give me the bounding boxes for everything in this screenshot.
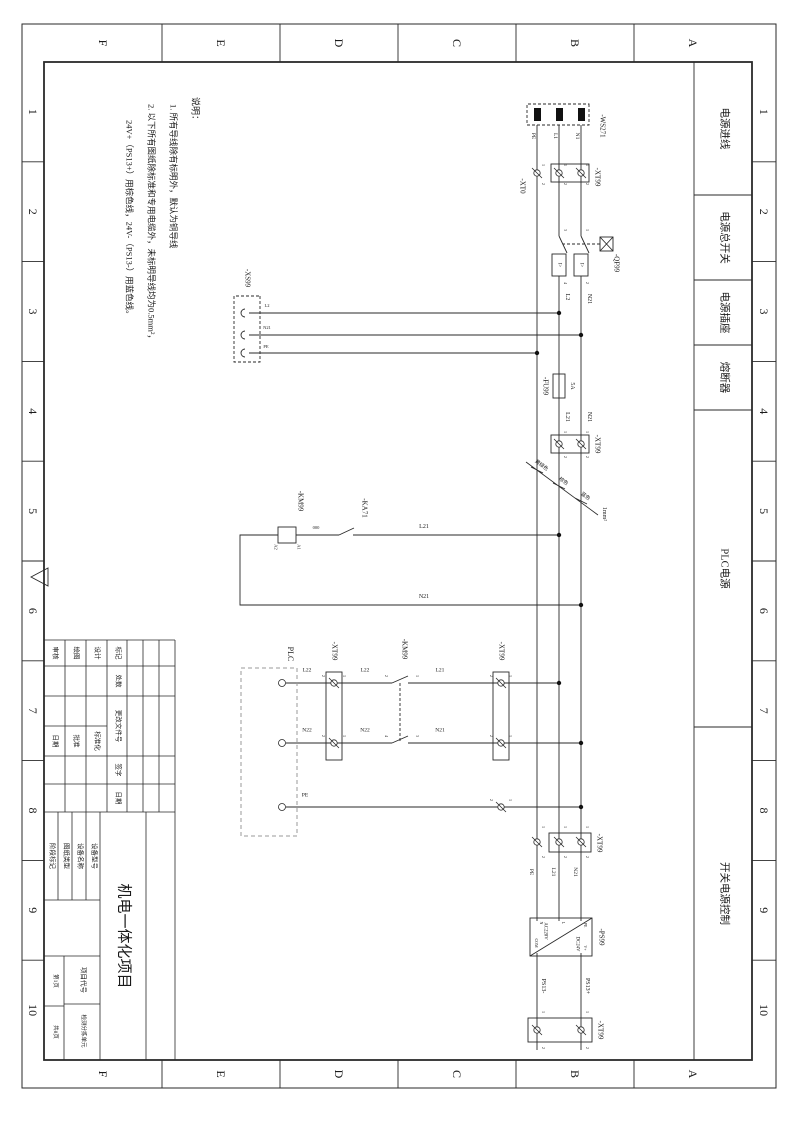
title-block-label: 更改文件号 <box>114 710 121 743</box>
centering-mark <box>31 568 48 586</box>
terminal-number: 1 <box>585 229 589 231</box>
title-block-label: 项目代号 <box>79 967 86 993</box>
note-line: 1. 所有导线除有标明外，默认为铜导线 <box>169 104 178 249</box>
component-label: -FU99 <box>542 377 549 395</box>
component-label: -QF99 <box>613 254 620 272</box>
terminal-number: 2 <box>489 799 493 801</box>
section-label: 电源插座 <box>718 292 729 334</box>
section-label: 开关电源控制 <box>718 862 729 925</box>
grid-number: 9 <box>758 907 770 913</box>
title-block-label: 设备型号 <box>90 843 97 869</box>
grid-letter: E <box>215 39 227 46</box>
terminal-number: 1 <box>415 675 419 677</box>
terminal-number: 4 <box>384 735 388 737</box>
wire-label: L21 <box>549 868 555 877</box>
grid-number: 5 <box>758 508 770 514</box>
grid-number: 8 <box>27 808 39 814</box>
grid-number: 4 <box>27 408 39 414</box>
page-count: 共8页 <box>51 1025 57 1039</box>
grid-letter: E <box>215 1070 227 1077</box>
title-block-label: 阶段标记 <box>48 843 55 869</box>
wire-label: L22 <box>361 668 370 674</box>
sheet-title: 机电一体化项目 <box>116 883 131 988</box>
wire-label: N1 <box>573 133 579 140</box>
wire-label: L21 <box>564 412 570 422</box>
grid-letter: F <box>97 40 109 47</box>
terminal-number: 2 <box>541 1047 545 1049</box>
title-block-label: 设备名称 <box>76 843 83 869</box>
note-line: 2. 以下所有图纸除标准和专用电缆外，未标明导线均为0.5mm²， <box>147 104 156 343</box>
wire-label: N21 <box>586 294 592 304</box>
terminal-number: 2 <box>585 856 589 858</box>
grid-letter: F <box>97 1071 109 1078</box>
terminal-number: 2 <box>585 456 589 458</box>
component-label: -XS99 <box>244 269 251 287</box>
unit-name: 检测分拣单元 <box>79 1014 85 1047</box>
wire-label: PS13- <box>540 979 546 994</box>
socket-xs99 <box>234 296 260 362</box>
terminal-number: 1 <box>342 735 346 737</box>
plc-box <box>241 668 297 836</box>
wires <box>240 125 600 1050</box>
grid-letter: B <box>569 39 581 47</box>
terminal-number: 2 <box>563 856 567 858</box>
title-block-label: 日期 <box>114 792 121 805</box>
grid-number: 6 <box>758 608 770 614</box>
wire-label: L22 <box>303 668 312 674</box>
title-block-label: 审核 <box>51 647 58 660</box>
grid-letter: C <box>451 39 463 47</box>
notes-heading: 说明： <box>191 97 200 124</box>
wire-label: L1 <box>551 133 557 139</box>
grid-number: 10 <box>758 1004 770 1016</box>
pin-label: N <box>539 922 543 925</box>
terminal-number: 2 <box>585 282 589 284</box>
breaker-trip-label: I> <box>579 263 584 268</box>
terminal-number: 1 <box>508 675 512 677</box>
terminal-number: 1 <box>342 675 346 677</box>
grid-number: 3 <box>758 309 770 315</box>
terminal-number: 1 <box>563 431 567 433</box>
title-block-label: 设计 <box>93 647 100 660</box>
drawing-page: -WS271N1L1PE-XT0-XT99-QF99I>I>L2N21-XS99… <box>0 0 794 1123</box>
terminals <box>279 168 587 1035</box>
grid-letter: A <box>687 39 699 48</box>
grid-number: 8 <box>758 808 770 814</box>
terminal-number: 2 <box>489 675 493 677</box>
grid-letter: D <box>333 39 345 48</box>
terminal-number: 1 <box>585 164 589 166</box>
wire-label: PE <box>529 133 535 139</box>
title-block-label: 日期 <box>51 735 58 748</box>
component-label: -XT99 <box>594 435 601 454</box>
title-block-label: 签字 <box>114 764 121 777</box>
terminal-number: 2 <box>489 735 493 737</box>
wire-label: N21 <box>571 867 577 876</box>
component-label: -XT99 <box>331 642 338 661</box>
terminal-number: 2 <box>321 735 325 737</box>
terminal-number: 1 <box>508 735 512 737</box>
grid-number: 10 <box>27 1004 39 1016</box>
title-block-label: 批准 <box>72 735 79 748</box>
component-label: -XT99 <box>594 168 601 187</box>
power-inlet-ws271 <box>527 104 589 125</box>
wire-label: L2 <box>564 294 570 301</box>
terminal-label: A2 <box>273 544 278 550</box>
grid-number: 6 <box>27 608 39 614</box>
terminal-number: 2 <box>585 1047 589 1049</box>
circuit-breaker-qf99 <box>552 237 613 276</box>
wire-label: 000 <box>313 526 320 531</box>
terminal-number: 1 <box>541 826 545 828</box>
grid-number: 3 <box>27 309 39 315</box>
mechanical-links <box>400 244 600 743</box>
pin-label: COM <box>534 938 538 947</box>
terminal-number: 1 <box>541 1011 545 1013</box>
terminal-number: 1 <box>585 431 589 433</box>
wire-label: N21 <box>263 326 271 331</box>
grid-number: 7 <box>758 708 770 714</box>
wire-label: PE <box>302 793 308 799</box>
component-label: -XT99 <box>596 834 603 853</box>
wire-label: N22 <box>360 728 369 734</box>
power-supply-input-label: AC220V <box>542 922 547 939</box>
wire-label: L21 <box>436 668 445 674</box>
grid-number: 4 <box>758 408 770 414</box>
grid-letter: D <box>333 1070 345 1079</box>
title-block-label: 处数 <box>114 675 121 688</box>
grid-number: 1 <box>758 109 770 115</box>
wire-label: N21 <box>435 728 444 734</box>
schematic-sheet: -WS271N1L1PE-XT0-XT99-QF99I>I>L2N21-XS99… <box>0 0 794 1123</box>
terminal-number: 1 <box>585 1011 589 1013</box>
title-block-label: 标准化 <box>93 731 100 751</box>
terminal-number: 1 <box>563 164 567 166</box>
grid-letter: B <box>569 1070 581 1078</box>
terminal-number: 3 <box>563 229 567 231</box>
wire-label: PE <box>263 345 268 350</box>
component-label: PLC <box>286 647 294 662</box>
terminal-number: 2 <box>384 675 388 677</box>
terminal-number: 2 <box>585 183 589 185</box>
component-label: -XT99 <box>498 642 505 661</box>
grid-letter: A <box>687 1070 699 1079</box>
terminal-number: 2 <box>563 183 567 185</box>
wire-label: PE <box>527 869 533 875</box>
pin-label: V+ <box>583 945 587 950</box>
pin-label: L <box>561 922 565 924</box>
terminal-number: 1 <box>563 826 567 828</box>
terminal-number: 2 <box>563 456 567 458</box>
component-label: -XT0 <box>519 178 526 193</box>
grid-number: 1 <box>27 109 39 115</box>
component-label: -XT99 <box>597 1021 604 1040</box>
wire-label: N22 <box>302 728 311 734</box>
grid-number: 5 <box>27 508 39 514</box>
note-line: 24V+（PS13+）用棕色线，24V-（PS13-）用蓝色线。 <box>125 120 134 319</box>
component-label: -KA71 <box>361 498 368 517</box>
wire-label: L2 <box>265 304 270 309</box>
section-label: 电源总开关 <box>718 211 729 264</box>
breaker-trip-label: I> <box>557 263 562 268</box>
grid-number: 2 <box>758 209 770 215</box>
terminal-number: 1 <box>541 164 545 166</box>
section-label: PLC电源 <box>718 548 729 588</box>
component-label: -PS99 <box>598 928 605 945</box>
terminal-strips <box>326 164 592 1042</box>
terminal-number: 4 <box>563 282 567 284</box>
title-block-label: 图纸类型 <box>62 843 69 869</box>
terminal-label: A1 <box>296 544 301 550</box>
contactor-coil-km99 <box>278 527 296 543</box>
title-block-label: 标记 <box>114 647 121 660</box>
grid-letter: C <box>451 1070 463 1078</box>
wire-label: PS13+ <box>584 978 590 994</box>
title-block-label: 绘图 <box>72 647 79 660</box>
terminal-number: 3 <box>415 735 419 737</box>
wire-gauge-label: 1mm² <box>601 507 607 521</box>
terminal-number: 1 <box>585 826 589 828</box>
terminal-number: 2 <box>541 183 545 185</box>
wire-label: N21 <box>419 594 429 600</box>
section-label: 电源进线 <box>718 108 729 150</box>
sheet-frame <box>22 24 776 1088</box>
terminal-number: 2 <box>541 856 545 858</box>
grid-number: 9 <box>27 907 39 913</box>
terminal-number: 2 <box>321 675 325 677</box>
terminal-number: 1 <box>508 799 512 801</box>
power-supply-output-label: DC24V <box>574 937 579 952</box>
component-label: -KM99 <box>297 491 304 512</box>
fuse-rating-label: 5A <box>569 382 575 389</box>
pin-label: PE <box>583 923 587 928</box>
page-number: 第1页 <box>51 974 57 988</box>
component-label: -KM99 <box>401 639 408 660</box>
wire-label: L21 <box>419 524 429 530</box>
grid-number: 7 <box>27 708 39 714</box>
wire-label: N21 <box>586 412 592 422</box>
component-label: -WS271 <box>599 114 606 137</box>
grid-number: 2 <box>27 209 39 215</box>
section-label: 熔断器 <box>718 362 729 394</box>
